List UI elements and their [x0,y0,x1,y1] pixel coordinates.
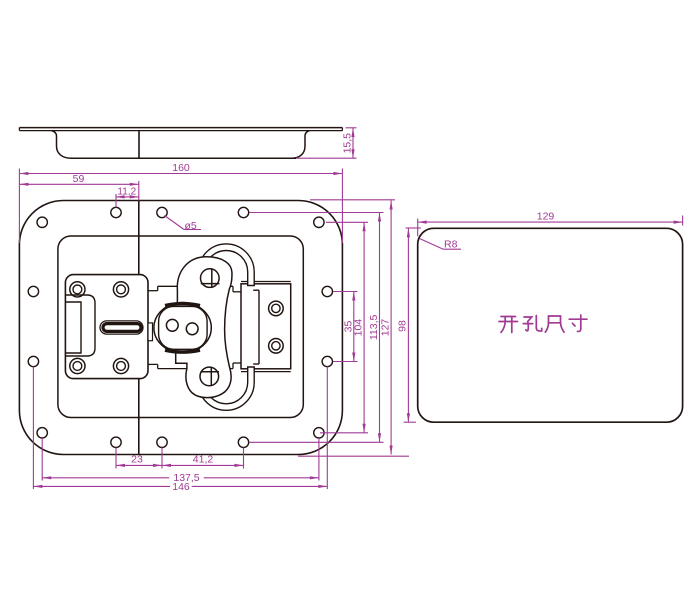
svg-text:11,2: 11,2 [117,186,136,197]
svg-text:129: 129 [537,211,555,223]
svg-text:ø5: ø5 [185,220,197,232]
svg-text:23: 23 [131,453,143,465]
svg-text:R8: R8 [444,239,458,251]
svg-text:104: 104 [353,319,365,337]
svg-text:113,5: 113,5 [368,314,380,340]
svg-text:146: 146 [172,481,190,493]
svg-text:59: 59 [73,173,85,185]
svg-text:15,5: 15,5 [341,133,353,154]
svg-text:98: 98 [396,320,408,332]
svg-text:41,2: 41,2 [193,453,214,465]
svg-text:127: 127 [380,319,392,337]
svg-text:160: 160 [172,162,190,174]
